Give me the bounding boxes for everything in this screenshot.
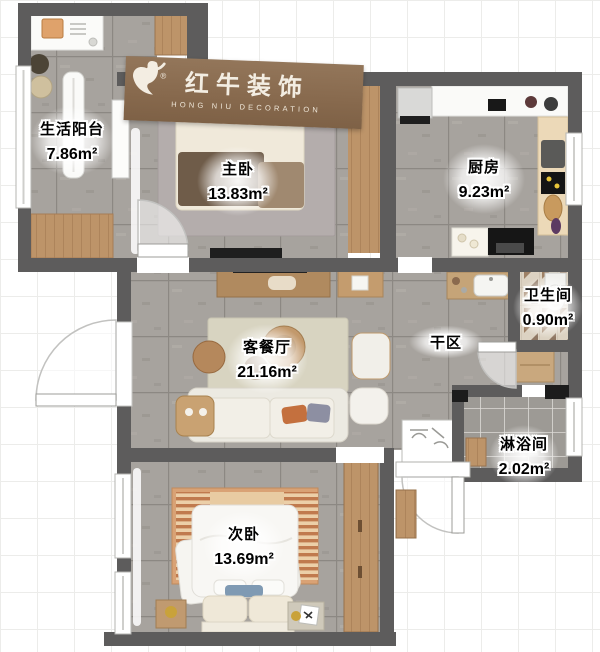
blue-pillow	[225, 585, 263, 597]
orange-pillow	[281, 404, 308, 424]
faucet-icon	[489, 277, 493, 281]
door-swing-arc	[36, 320, 116, 400]
banner-text: 红牛装饰 HONG NIU DECORATION	[171, 72, 322, 114]
pouf	[350, 388, 388, 424]
cup	[470, 240, 478, 248]
brand-banner: ® 红牛装饰 HONG NIU DECORATION	[124, 56, 364, 129]
toilet-seat	[549, 291, 561, 307]
small-appliance	[488, 99, 506, 111]
wall-block	[545, 385, 569, 399]
lamp-icon	[165, 606, 177, 618]
cutting-board	[544, 195, 562, 221]
cooktop	[541, 172, 565, 194]
wall	[508, 340, 582, 352]
fridge-base	[400, 116, 430, 124]
bowl	[525, 96, 537, 108]
round-side-table	[193, 341, 225, 373]
headboard-bench	[202, 622, 294, 632]
toiletry	[452, 277, 460, 285]
eggplant-icon	[551, 218, 561, 234]
curtain	[133, 468, 141, 626]
entry-door-leaf	[452, 477, 464, 533]
wall	[380, 72, 396, 272]
wardrobe	[344, 462, 378, 632]
washer-sketch-box	[402, 420, 456, 462]
brand-subtitle: HONG NIU DECORATION	[171, 101, 321, 114]
wall	[508, 272, 520, 346]
toilet-tank	[545, 273, 566, 286]
wall	[104, 632, 396, 646]
registered-mark: ®	[160, 71, 166, 80]
toiletry	[461, 287, 467, 293]
console-deco	[268, 276, 296, 290]
cabinet-deco	[352, 276, 368, 290]
pot	[544, 97, 558, 111]
gray-pillow	[306, 403, 331, 423]
shoe-cabinet	[396, 490, 416, 538]
pillow	[249, 596, 293, 622]
chair-button	[185, 408, 193, 416]
stool	[30, 76, 52, 98]
oven-door	[496, 243, 524, 253]
lamp-icon	[291, 611, 301, 621]
burner-flame-icon	[555, 184, 560, 189]
wall	[18, 3, 208, 16]
wall-block	[452, 390, 468, 402]
floor-plan: ® 红牛装饰 HONG NIU DECORATION 生活阳台 7.86m² 主…	[0, 0, 600, 652]
pillow	[203, 596, 247, 622]
door-opening	[116, 322, 132, 406]
shower-drain-icon	[528, 446, 538, 456]
wall	[452, 468, 582, 482]
shower-opening	[522, 385, 545, 397]
armchair	[352, 333, 390, 379]
door-leaf	[478, 342, 516, 352]
sofa-cushion	[206, 398, 270, 438]
burner-flame-icon	[547, 177, 552, 182]
wardrobe-handle	[358, 566, 362, 578]
plant-icon	[29, 54, 49, 74]
balcony-cabinet	[155, 13, 188, 55]
wall	[18, 258, 582, 272]
wood-mat	[31, 214, 113, 258]
laundry-basket	[42, 19, 63, 38]
kitchen-sink	[541, 140, 565, 168]
door-leaf	[138, 244, 188, 257]
lounge-chair	[176, 396, 214, 436]
sink-drain-icon	[89, 38, 97, 46]
entry-threshold	[396, 462, 470, 477]
door-leaf	[36, 394, 116, 406]
wardrobe-handle	[358, 520, 362, 532]
chair-button	[199, 408, 207, 416]
coffee-table-inner	[272, 335, 296, 359]
kitchen-opening	[398, 257, 432, 273]
wall	[380, 448, 394, 646]
bed-throw	[258, 162, 304, 208]
bed-blanket	[178, 152, 264, 206]
fridge	[398, 88, 432, 118]
cup	[458, 234, 466, 242]
nesting-table	[244, 356, 268, 380]
door-opening	[137, 257, 189, 273]
brand-name: 红牛装饰	[172, 72, 323, 102]
door-opening	[336, 447, 384, 463]
